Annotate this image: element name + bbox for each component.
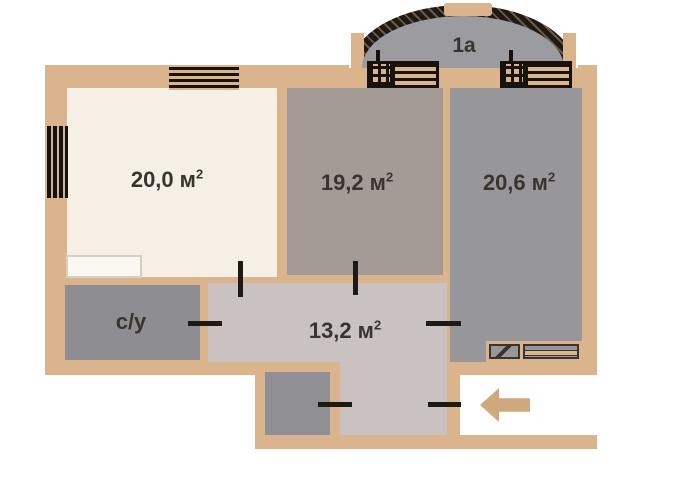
entrance-arrow-icon (480, 388, 530, 422)
door-opening-mark-entrance (428, 402, 461, 407)
balcony-window-stripes-icon (528, 64, 569, 85)
balcony-door-hinge-mark (509, 50, 513, 63)
balcony-window-stripes-icon (395, 64, 436, 85)
wardrobe-shelf-cell (523, 344, 579, 359)
balcony-door-grid-icon (370, 64, 390, 85)
balcony-door-window-icon-right (500, 61, 572, 88)
room-right (450, 88, 582, 362)
door-opening-mark-bathroom (188, 321, 222, 326)
floor-plan: 1a 20,0м2 19,2м2 20,6м2 13,2м2 с/у (0, 0, 700, 488)
balcony-label: 1a (452, 34, 475, 58)
bathroom-label: с/у (116, 309, 147, 335)
door-opening-mark-closet (318, 402, 352, 407)
room-right-label: 20,6м2 (483, 170, 555, 196)
outer-wall-bottom-strip (255, 435, 597, 449)
balcony-label-text: 1a (452, 34, 475, 57)
door-opening-mark-right-room (426, 321, 461, 326)
furniture-icon-living (66, 255, 142, 278)
wardrobe-diagonal-cell (489, 344, 523, 359)
hallway-label: 13,2м2 (309, 318, 381, 344)
room-living-label: 20,0м2 (131, 167, 203, 193)
window-icon-left-wall (47, 126, 68, 198)
door-opening-mark-living (238, 261, 243, 297)
wardrobe-icon (486, 341, 582, 362)
door-opening-mark-middle (353, 261, 358, 295)
balcony-door-window-icon-left (367, 61, 439, 88)
balcony-door-grid-icon (503, 64, 523, 85)
balcony-keystone (444, 3, 492, 16)
window-icon-top-wall (169, 67, 239, 90)
balcony-door-hinge-mark (376, 50, 380, 63)
room-middle-label: 19,2м2 (321, 170, 393, 196)
hallway-lower (340, 362, 447, 435)
